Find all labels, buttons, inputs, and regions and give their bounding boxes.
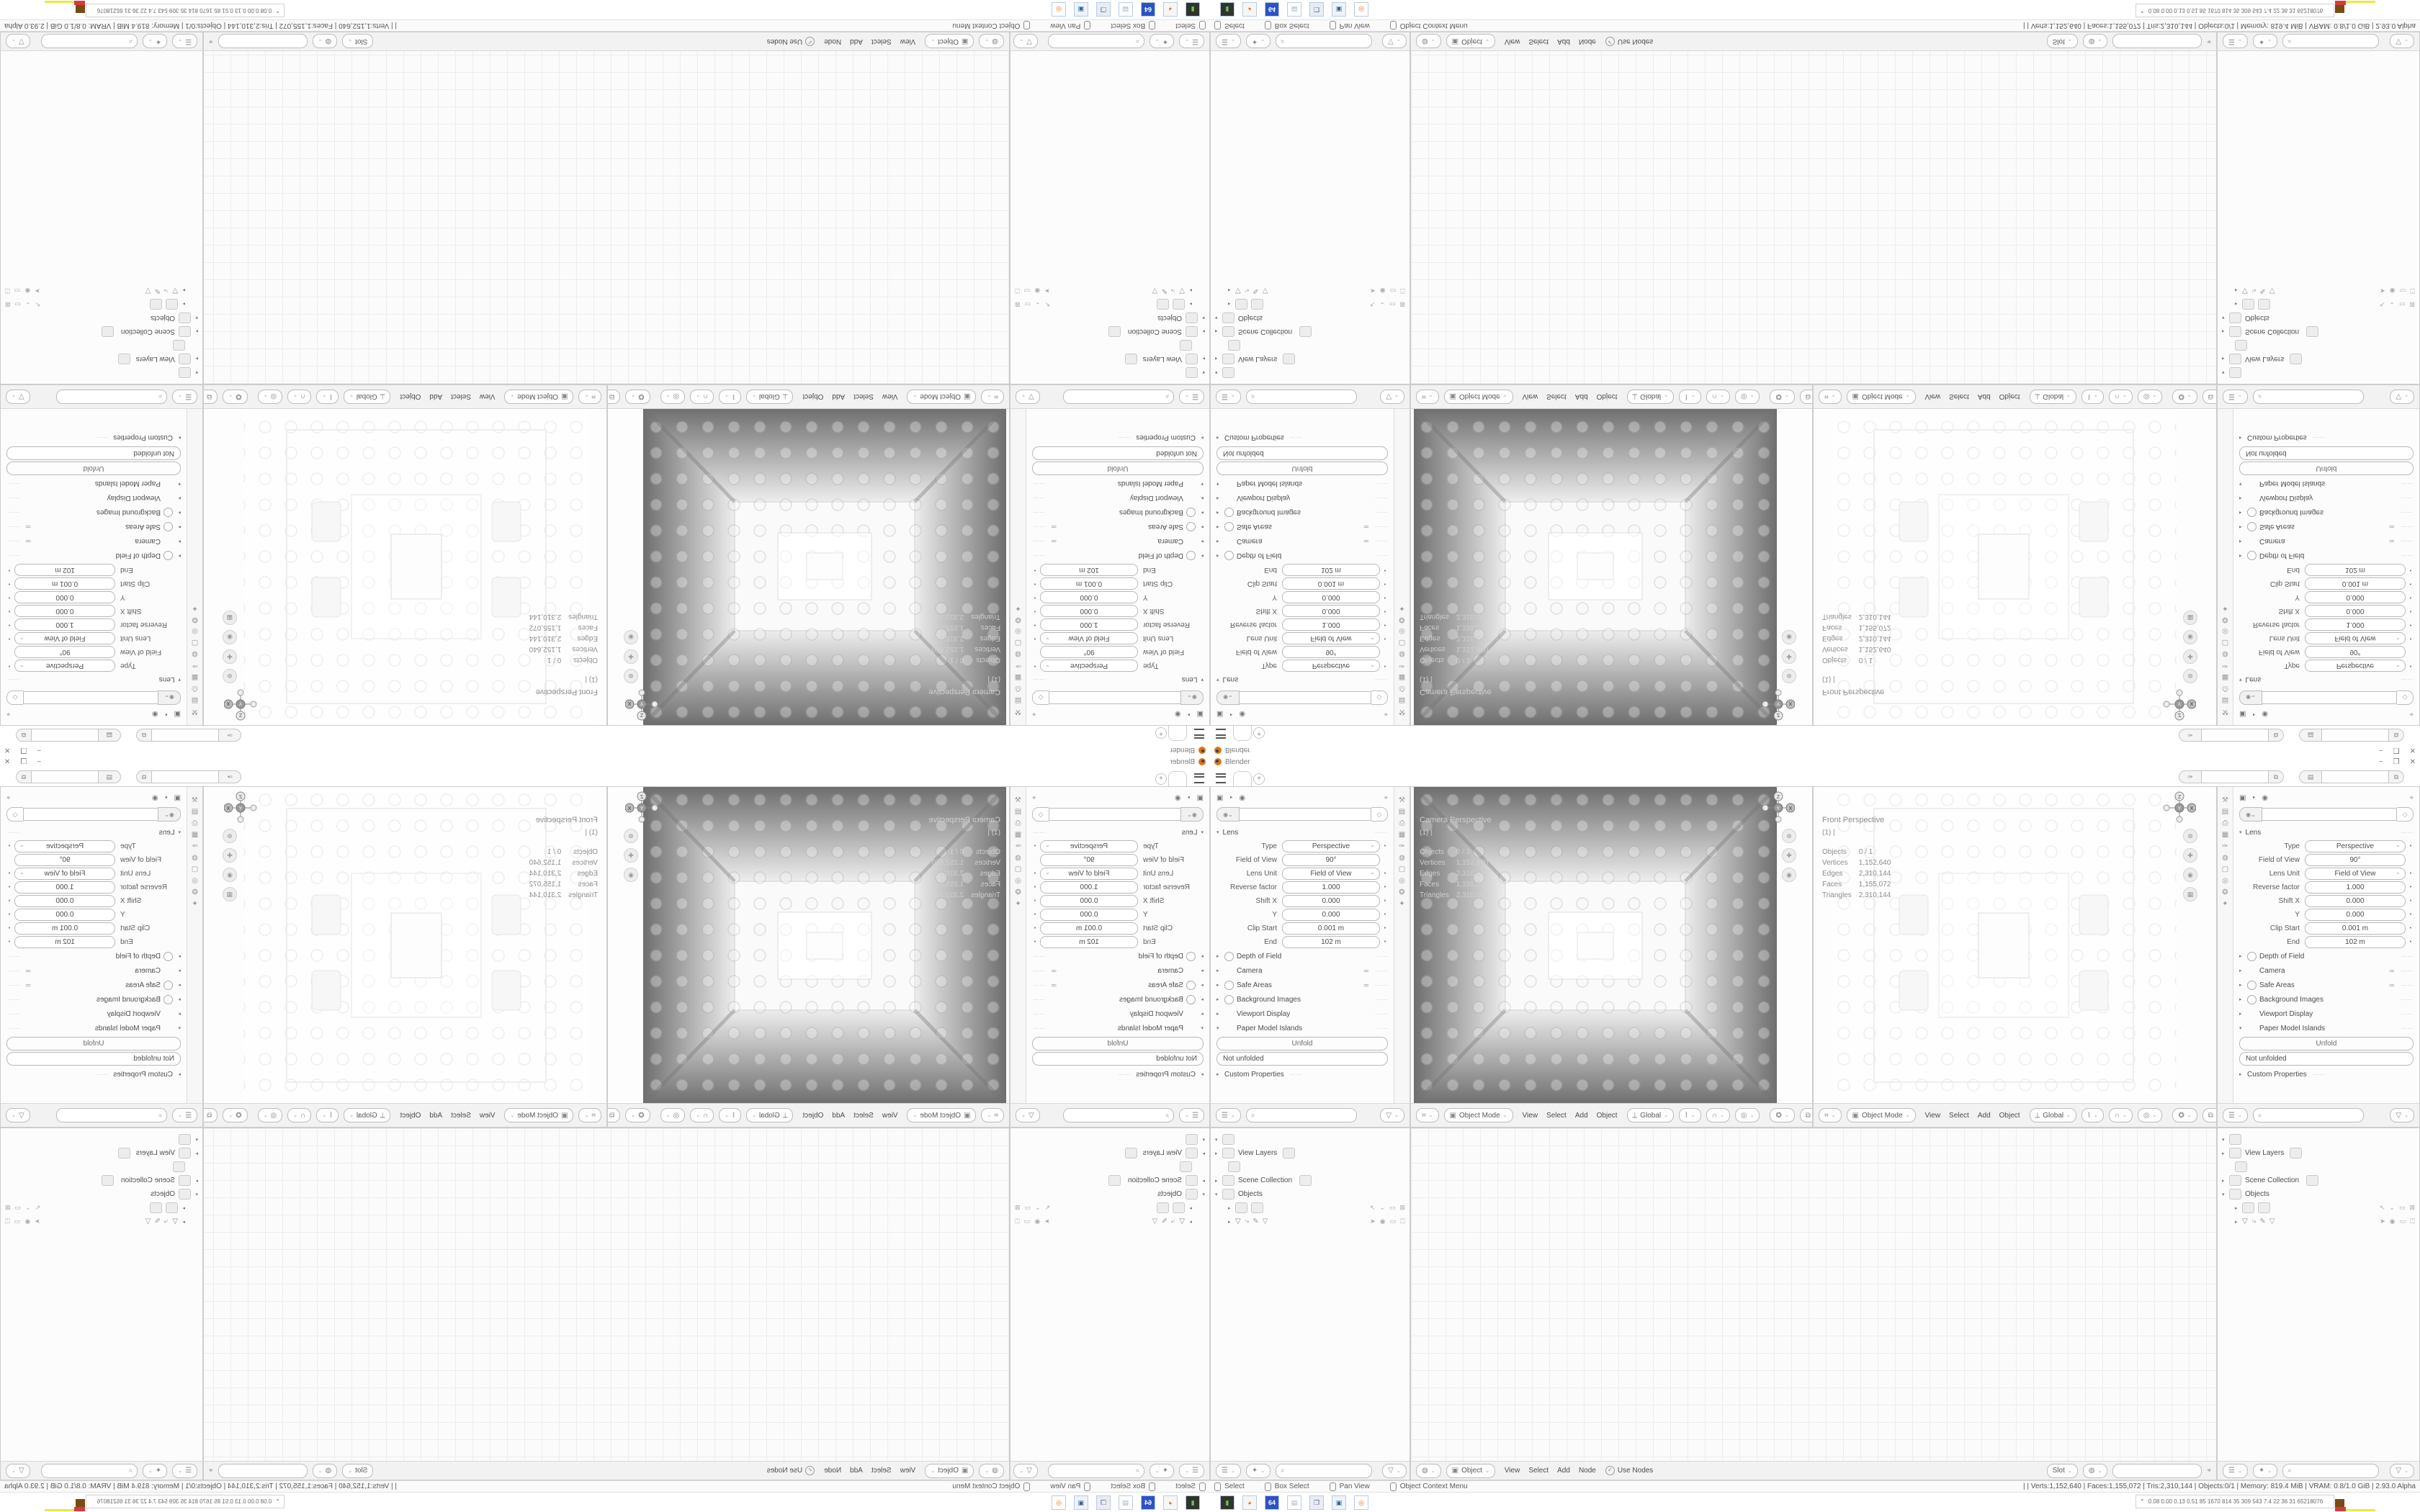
outliner-row-modifiers[interactable]: ▸▽ ⤷✎▽ ➤◉▭⏍ [1015, 284, 1192, 297]
outliner-row-viewlayers[interactable]: ▸View Layers [5, 352, 198, 366]
scene-selector[interactable]: ✑ ⧉ [2179, 729, 2289, 742]
viewport-nav-button[interactable]: ◉ [624, 630, 638, 644]
search-input[interactable]: ⌕ [2282, 1464, 2379, 1478]
menu-item[interactable]: Add [1553, 37, 1574, 45]
panel-checkbox[interactable] [163, 981, 173, 990]
modifier-icon[interactable]: ⤷ [1171, 1218, 1175, 1225]
orientation-dropdown[interactable]: ⟂Global⌄ [344, 390, 390, 404]
properties-tab-icon[interactable]: ✦ [189, 603, 202, 614]
outliner-row-objects[interactable]: ▾Objects [2222, 311, 2415, 325]
search-input[interactable]: ⌕ [56, 390, 167, 404]
properties-tab-icon[interactable]: ⎙ [189, 817, 202, 829]
system-monitor-applet[interactable]: ⌃ 0.08 0.00 0.13 0.51 85 1670 814 35 309… [86, 4, 284, 17]
property-value[interactable]: 0.000 [2305, 592, 2406, 604]
panel-checkbox[interactable] [1224, 508, 1234, 518]
viewport-nav-button[interactable]: ✚ [223, 649, 237, 664]
taskbar-app-icon[interactable]: 64 [1141, 2, 1155, 17]
editor-type-dropdown[interactable]: ⌗⌄ [1819, 1108, 1842, 1122]
editor-type-dropdown[interactable]: ☰⌄ [2223, 390, 2248, 404]
restrict-toggle-icon[interactable]: ↖ [2380, 300, 2385, 308]
filter-dropdown[interactable]: ▽⌄ [1380, 390, 1404, 404]
outliner-row-mesh[interactable]: ▸ ↖⌄▭⊠ [5, 297, 185, 311]
editor-type-dropdown[interactable]: ☰⌄ [2223, 1108, 2248, 1122]
properties-tab-icon[interactable]: ⚒ [1012, 706, 1025, 718]
menu-item[interactable]: Object [1592, 393, 1622, 401]
taskbar-app-icon[interactable]: ▣ [1332, 2, 1346, 17]
property-value[interactable]: 90° [1282, 647, 1380, 659]
modifier-icon[interactable]: ▽ [1263, 287, 1268, 294]
panel-header[interactable]: ▾ Paper Model Islands ≔ ⋯⋯ [2239, 1021, 2414, 1035]
not-unfolded-field[interactable]: Not unfolded [1216, 446, 1388, 460]
menu-item[interactable]: View [896, 1467, 920, 1475]
panel-header[interactable]: ▸ Viewport Display ≔ ⋯⋯ [1216, 1007, 1388, 1021]
property-value[interactable]: 0.000 [14, 895, 115, 907]
id-block-row[interactable]: ◉⌄ ◇ [1032, 690, 1204, 705]
editor-type-dropdown[interactable]: ☰⌄ [1179, 1108, 1204, 1122]
lens-panel-header[interactable]: ▾ Lens ⋯⋯ [6, 826, 181, 839]
animate-dot[interactable]: • [1032, 871, 1038, 876]
fake-user-icon[interactable]: ◇ [1032, 690, 1049, 705]
panel-header[interactable]: ▸ Viewport Display ≔ ⋯⋯ [1032, 1007, 1204, 1021]
property-value[interactable]: 102 m [1282, 564, 1380, 577]
outliner-row-viewlayers[interactable]: ▸View Layers [1015, 1146, 1205, 1160]
viewlayer-selector[interactable]: ▤ ⧉ [2299, 770, 2409, 783]
animate-dot[interactable]: • [1032, 595, 1038, 600]
outliner-row-objects[interactable]: ▾Objects [2222, 1187, 2415, 1201]
property-value[interactable]: 0.000 [1282, 606, 1380, 618]
shading-dropdown[interactable]: ✪⌄ [2172, 390, 2197, 404]
unfold-button[interactable]: Unfold [1032, 462, 1204, 475]
animate-dot[interactable]: • [2408, 595, 2414, 600]
mode-dropdown[interactable]: ▣Object Mode⌄ [1444, 1108, 1513, 1122]
restrict-toggle-icon[interactable]: ▭ [14, 287, 21, 294]
modifier-icon[interactable]: ⤷ [2252, 287, 2257, 294]
slot-dropdown[interactable]: Slot⌄ [2047, 1464, 2078, 1478]
modifier-icon[interactable]: ✎ [2259, 287, 2265, 294]
restrict-toggle-icon[interactable]: ⏍ [1400, 287, 1405, 294]
properties-tab-icon[interactable]: ✑ [1012, 660, 1025, 672]
properties-tab-icon[interactable]: ✑ [2219, 660, 2232, 672]
panel-header[interactable]: ▸ Depth of Field ≔ ⋯⋯ [1032, 949, 1204, 963]
proportional-edit-toggle[interactable]: ◎⌄ [2138, 390, 2163, 404]
outliner-filter-row[interactable]: ▾ [5, 366, 198, 379]
taskbar-app-icon[interactable]: ◕ [1242, 2, 1257, 17]
property-value[interactable]: 0.001 m [2305, 578, 2406, 590]
animate-dot[interactable]: • [6, 885, 12, 890]
outliner-row-mesh[interactable]: ▸ ↖⌄▭⊠ [2235, 1201, 2415, 1215]
restrict-toggle-icon[interactable]: ⌄ [1379, 300, 1385, 308]
unfold-button[interactable]: Unfold [1032, 1037, 1204, 1050]
editor-type-dropdown[interactable]: ⌗⌄ [981, 390, 1004, 404]
restrict-toggle-icon[interactable]: ⊠ [5, 300, 11, 308]
modifier-icon[interactable]: ▽ [145, 287, 151, 294]
new-scene-icon[interactable]: ⧉ [2269, 770, 2284, 783]
modifier-icon[interactable]: ✎ [1161, 287, 1167, 294]
mode-dropdown[interactable]: ▣Object Mode⌄ [1444, 390, 1513, 404]
property-value[interactable]: Field of View [1040, 633, 1138, 645]
panel-header[interactable]: ▸ Viewport Display ≔ ⋯⋯ [2239, 1007, 2414, 1021]
system-monitor-applet[interactable]: ⌃ 0.08 0.00 0.13 0.51 85 1670 814 35 309… [2136, 4, 2334, 17]
properties-tab-icon[interactable]: ▤ [1012, 695, 1025, 706]
filter-dropdown[interactable]: ▽⌄ [1013, 35, 1038, 49]
panel-checkbox[interactable] [163, 995, 173, 1004]
properties-tab-icon[interactable]: ▢ [1396, 637, 1409, 649]
animate-dot[interactable]: • [1032, 664, 1038, 669]
restore-button[interactable]: ❐ [2393, 758, 2400, 766]
restrict-toggle-icon[interactable]: ⏍ [2410, 287, 2415, 294]
viewport-nav-button[interactable]: ◉ [1782, 868, 1796, 882]
pin-icon[interactable]: ⌖ [1384, 711, 1388, 719]
panel-header[interactable]: ▾ Paper Model Islands ≔ ⋯⋯ [1032, 477, 1204, 491]
property-value[interactable]: Perspective [1282, 660, 1380, 672]
axis-gizmo[interactable]: Z Y X [1762, 688, 1795, 721]
menu-item[interactable]: Object [395, 1112, 425, 1120]
shading-dropdown[interactable]: ✪⌄ [223, 390, 247, 404]
properties-tab-icon[interactable]: ✦ [1012, 898, 1025, 909]
property-value[interactable]: 0.000 [1282, 592, 1380, 604]
lens-panel-header[interactable]: ▾ Lens ⋯⋯ [1032, 673, 1204, 686]
panel-header[interactable]: ▸ Camera ≔ ⋯⋯ [2239, 963, 2414, 978]
search-input[interactable]: ⌕ [2253, 1108, 2364, 1122]
property-value[interactable]: 102 m [14, 564, 115, 577]
viewlayer-selector[interactable]: ▤ ⧉ [2299, 729, 2409, 742]
shader-type-dropdown[interactable]: ▣Object⌄ [925, 35, 974, 49]
display-mode-dropdown[interactable]: ✦⌄ [143, 35, 167, 49]
overlays-dropdown[interactable]: ⧉⌄ [1800, 1108, 1813, 1122]
outliner-row-scene-collection[interactable]: ▸Scene Collection [1015, 325, 1205, 338]
restrict-toggle-icon[interactable]: ▭ [1389, 300, 1396, 308]
camera-name-field[interactable] [1049, 808, 1180, 821]
menu-item[interactable]: Add [1571, 393, 1592, 401]
outliner-filter-row[interactable]: ▾ [2222, 366, 2415, 379]
camera-name-field[interactable] [2262, 691, 2397, 704]
search-input[interactable]: ⌕ [1063, 390, 1174, 404]
restrict-toggle-icon[interactable]: ⏍ [5, 287, 10, 294]
animate-dot[interactable]: • [2408, 899, 2414, 904]
panel-checkbox[interactable] [2247, 552, 2257, 561]
property-value[interactable]: 0.000 [1040, 606, 1138, 618]
shading-dropdown[interactable]: ✪⌄ [2172, 1108, 2197, 1122]
filter-dropdown[interactable]: ▽⌄ [6, 390, 30, 404]
proportional-edit-toggle[interactable]: ◎⌄ [258, 390, 283, 404]
properties-tab-icon[interactable]: ◎ [2219, 875, 2232, 886]
animate-dot[interactable]: • [1382, 912, 1388, 917]
panel-checkbox[interactable] [163, 523, 173, 532]
outliner-row-mesh[interactable]: ▸ ↖⌄▭⊠ [5, 1201, 185, 1215]
menu-item[interactable]: View [475, 1112, 500, 1120]
panel-header[interactable]: ▸ Safe Areas ≔ ⋯⋯ [1032, 520, 1204, 534]
restrict-toggle-icon[interactable]: ⊠ [2409, 1204, 2415, 1212]
property-value[interactable]: 1.000 [2305, 619, 2406, 631]
axis-gizmo[interactable]: Z Y X [224, 791, 257, 824]
panel-header[interactable]: ▸ Depth of Field ≔ ⋯⋯ [1216, 549, 1388, 563]
custom-properties-header[interactable]: ▸ Custom Properties ⋯⋯ [1032, 1067, 1204, 1081]
unfold-button[interactable]: Unfold [6, 462, 181, 475]
animate-dot[interactable]: • [1032, 926, 1038, 931]
properties-tab-icon[interactable]: ✑ [1396, 660, 1409, 672]
animate-dot[interactable]: • [1032, 636, 1038, 642]
properties-tab-icon[interactable]: ◍ [2219, 649, 2232, 660]
panel-checkbox[interactable] [2247, 508, 2257, 518]
properties-tab-icon[interactable]: ⚒ [1012, 794, 1025, 806]
restrict-toggle-icon[interactable]: ⌄ [2389, 1204, 2395, 1212]
restrict-toggle-icon[interactable]: ◉ [24, 287, 30, 294]
menu-item[interactable]: Object [395, 393, 425, 401]
workspace-tab[interactable] [1233, 725, 1252, 741]
modifier-icon[interactable]: ▽ [1152, 1218, 1158, 1225]
restrict-toggle-icon[interactable]: ➤ [2380, 1218, 2385, 1225]
orientation-dropdown[interactable]: ⟂Global⌄ [344, 1108, 390, 1122]
properties-tab-icon[interactable]: ▢ [189, 863, 202, 875]
properties-tab-icon[interactable]: ◎ [1012, 626, 1025, 637]
menu-item[interactable]: View [878, 393, 902, 401]
snap-toggle[interactable]: ⌇⌄ [719, 1108, 741, 1122]
panel-header[interactable]: ▸ Safe Areas ≔ ⋯⋯ [6, 520, 181, 534]
orientation-dropdown[interactable]: ⟂Global⌄ [1627, 390, 1674, 404]
restrict-toggle-icon[interactable]: ▭ [1025, 300, 1031, 308]
outliner-row-world[interactable] [5, 1160, 185, 1174]
outliner-row-viewlayers[interactable]: ▸View Layers [1215, 1146, 1405, 1160]
panel-header[interactable]: ▸ Background Images ≔ ⋯⋯ [6, 992, 181, 1007]
viewport-nav-button[interactable]: ◉ [624, 868, 638, 882]
modifier-icon[interactable]: ✎ [1161, 1218, 1167, 1225]
orientation-dropdown[interactable]: ⟂Global⌄ [746, 390, 793, 404]
not-unfolded-field[interactable]: Not unfolded [1032, 1052, 1204, 1066]
modifier-icon[interactable]: ⤷ [1245, 287, 1250, 294]
animate-dot[interactable]: • [1382, 636, 1388, 642]
panel-header[interactable]: ▸ Viewport Display ≔ ⋯⋯ [2239, 491, 2414, 505]
panel-checkbox[interactable] [2247, 523, 2257, 532]
new-scene-icon[interactable]: ⧉ [136, 729, 151, 742]
taskbar-app-icon[interactable]: ▤ [1119, 2, 1133, 17]
viewport-nav-button[interactable]: ⊕ [1782, 829, 1796, 843]
outliner-filter-row[interactable]: ▾ [5, 1133, 198, 1146]
slot-dropdown[interactable]: Slot⌄ [342, 35, 373, 49]
animate-dot[interactable]: • [1382, 940, 1388, 945]
properties-tab-icon[interactable]: ◍ [1012, 649, 1025, 660]
scene-name-field[interactable] [151, 770, 218, 783]
restrict-toggle-icon[interactable]: ↖ [2380, 1204, 2385, 1212]
restore-button[interactable]: ❐ [20, 747, 27, 755]
custom-properties-header[interactable]: ▸ Custom Properties ⋯⋯ [6, 1067, 181, 1081]
shader-type-dropdown[interactable]: ▣Object⌄ [1446, 1464, 1495, 1478]
properties-tab-icon[interactable]: ❂ [1012, 614, 1025, 626]
menu-item[interactable]: View [475, 393, 500, 401]
outliner-row-mesh[interactable]: ▸ ↖⌄▭⊠ [2235, 297, 2415, 311]
menu-item[interactable]: View [1500, 1467, 1525, 1475]
taskbar-app-icon[interactable]: ▮ [1186, 1495, 1200, 1510]
editor-type-dropdown[interactable]: ☰⌄ [172, 1464, 197, 1478]
modifier-icon[interactable]: ✎ [154, 287, 160, 294]
menu-item[interactable]: Add [1973, 1112, 1995, 1120]
viewlayer-name-field[interactable] [2322, 770, 2389, 783]
outliner-filter-row[interactable]: ▾ [1215, 1133, 1405, 1146]
outliner-filter-row[interactable]: ▾ [1015, 366, 1205, 379]
id-block-row[interactable]: ◉⌄ ◇ [1216, 807, 1388, 822]
animate-dot[interactable]: • [2408, 912, 2414, 917]
shader-node-editor[interactable]: ▾ Value Divide Clamp [203, 1128, 1010, 1480]
panel-header[interactable]: ▸ Depth of Field ≔ ⋯⋯ [1032, 549, 1204, 563]
properties-tab-icon[interactable]: ▦ [1012, 672, 1025, 683]
outliner-filter-row[interactable]: ▾ [1215, 366, 1405, 379]
property-value[interactable]: Field of View [14, 868, 115, 880]
outliner-row-objects[interactable]: ▾Objects [5, 1187, 198, 1201]
panel-header[interactable]: ▸ Camera ≔ ⋯⋯ [1216, 963, 1388, 978]
unfold-button[interactable]: Unfold [2239, 462, 2414, 475]
property-value[interactable]: 0.001 m [1282, 578, 1380, 590]
taskbar-app-icon[interactable]: ◕ [1163, 2, 1178, 17]
properties-tab-icon[interactable]: ✑ [189, 660, 202, 672]
menu-item[interactable]: Select [849, 393, 878, 401]
animate-dot[interactable]: • [2408, 636, 2414, 642]
shader-node-editor[interactable]: ▾ Value Divide Clamp [1410, 1128, 2217, 1480]
custom-properties-header[interactable]: ▸ Custom Properties ⋯⋯ [2239, 431, 2414, 445]
animate-dot[interactable]: • [6, 912, 12, 917]
pin-icon[interactable]: ⌖ [209, 37, 213, 45]
taskbar-app-icon[interactable]: ◎ [1354, 1495, 1368, 1510]
search-input[interactable]: ⌕ [41, 35, 138, 49]
panel-header[interactable]: ▸ Camera ≔ ⋯⋯ [1216, 534, 1388, 549]
properties-tab-icon[interactable]: ▤ [2219, 806, 2232, 817]
new-viewlayer-icon[interactable]: ⧉ [2389, 729, 2404, 742]
property-value[interactable]: 1.000 [1282, 619, 1380, 631]
properties-tab-icon[interactable]: ❂ [1012, 886, 1025, 898]
viewport-nav-button[interactable]: ▦ [223, 887, 237, 901]
system-monitor-applet[interactable]: ⌃ 0.08 0.00 0.13 0.51 85 1670 814 35 309… [86, 1495, 284, 1508]
magnet-toggle[interactable]: ∩⌄ [1706, 390, 1730, 404]
modifier-icon[interactable]: ⤷ [1245, 1218, 1250, 1225]
editor-type-dropdown[interactable]: ⌗⌄ [578, 1108, 601, 1122]
property-value[interactable]: Field of View [2305, 868, 2406, 880]
overlays-dropdown[interactable]: ⧉⌄ [607, 1108, 620, 1122]
filter-dropdown[interactable]: ▽⌄ [2390, 1108, 2414, 1122]
animate-dot[interactable]: • [2408, 609, 2414, 614]
camera-id-icon[interactable]: ◉⌄ [2239, 690, 2262, 705]
close-button[interactable]: ✕ [2410, 758, 2416, 766]
restrict-toggle-icon[interactable]: ⊠ [1399, 1204, 1405, 1212]
shader-type-dropdown[interactable]: ▣Object⌄ [925, 1464, 974, 1478]
editor-type-dropdown[interactable]: ☰⌄ [1216, 1108, 1241, 1122]
overlays-dropdown[interactable]: ⧉⌄ [203, 1108, 218, 1122]
menu-item[interactable]: Select [867, 1467, 896, 1475]
menu-item[interactable]: Select [1945, 393, 1973, 401]
property-value[interactable]: 102 m [1282, 936, 1380, 948]
custom-properties-header[interactable]: ▸ Custom Properties ⋯⋯ [2239, 1067, 2414, 1081]
properties-tab-icon[interactable]: ▦ [189, 672, 202, 683]
lens-panel-header[interactable]: ▾ Lens ⋯⋯ [1216, 826, 1388, 839]
not-unfolded-field[interactable]: Not unfolded [6, 1052, 181, 1066]
outliner-row-modifiers[interactable]: ▸▽ ⤷✎▽ ➤◉▭⏍ [2235, 284, 2415, 297]
minimize-button[interactable]: − [37, 758, 41, 766]
mode-dropdown[interactable]: ▣Object Mode⌄ [907, 390, 976, 404]
property-value[interactable]: Field of View [2305, 633, 2406, 645]
fake-user-icon[interactable]: ◇ [1371, 690, 1388, 705]
viewport-nav-button[interactable]: ◉ [223, 630, 237, 644]
properties-tab-icon[interactable]: ❂ [2219, 614, 2232, 626]
properties-tab-icon[interactable]: ✦ [1396, 603, 1409, 614]
proportional-edit-toggle[interactable]: ◎⌄ [2138, 1108, 2163, 1122]
viewport-front[interactable]: Front Perspective (1) | Objects0 / 1Vert… [203, 384, 607, 726]
outliner-filter-row[interactable]: ▾ [1015, 1133, 1205, 1146]
property-value[interactable]: 1.000 [14, 619, 115, 631]
new-viewlayer-icon[interactable]: ⧉ [16, 729, 31, 742]
modifier-icon[interactable]: ▽ [1263, 1218, 1268, 1225]
editor-type-dropdown[interactable]: ☰⌄ [1179, 390, 1204, 404]
properties-tab-icon[interactable]: ❂ [189, 614, 202, 626]
search-input[interactable]: ⌕ [2253, 390, 2364, 404]
system-monitor-applet[interactable]: ⌃ 0.08 0.00 0.13 0.51 85 1670 814 35 309… [2136, 1495, 2334, 1508]
viewlayer-selector[interactable]: ▤ ⧉ [11, 770, 121, 783]
panel-header[interactable]: ▸ Safe Areas ≔ ⋯⋯ [1216, 978, 1388, 992]
menu-item[interactable]: Select [1945, 1112, 1973, 1120]
scene-selector[interactable]: ✑ ⧉ [2179, 770, 2289, 783]
id-block-row[interactable]: ◉⌄ ◇ [2239, 807, 2414, 822]
viewport-nav-button[interactable]: ✚ [1782, 649, 1796, 664]
properties-tab-icon[interactable]: ▤ [1396, 695, 1409, 706]
not-unfolded-field[interactable]: Not unfolded [6, 446, 181, 460]
snap-toggle[interactable]: ⌇⌄ [316, 1108, 339, 1122]
panel-checkbox[interactable] [1186, 508, 1196, 518]
properties-tab-icon[interactable]: ◍ [1396, 649, 1409, 660]
outliner-row-modifiers[interactable]: ▸▽ ⤷✎▽ ➤◉▭⏍ [5, 1215, 185, 1228]
properties-tab-icon[interactable]: ▦ [189, 829, 202, 840]
outliner-row-mesh[interactable]: ▸ ↖⌄▭⊠ [1015, 297, 1192, 311]
animate-dot[interactable]: • [2408, 664, 2414, 669]
outliner-row-scene-collection[interactable]: ▸Scene Collection [1215, 1174, 1405, 1187]
property-value[interactable]: Field of View [1040, 868, 1138, 880]
restrict-toggle-icon[interactable]: ➤ [1044, 1218, 1050, 1225]
viewport-nav-button[interactable]: ⊕ [624, 829, 638, 843]
animate-dot[interactable]: • [2408, 885, 2414, 890]
animate-dot[interactable]: • [1032, 609, 1038, 614]
close-button[interactable]: ✕ [4, 758, 10, 766]
menu-item[interactable]: Select [867, 37, 896, 45]
properties-tab-icon[interactable]: ▢ [2219, 863, 2232, 875]
snap-toggle[interactable]: ⌇⌄ [1679, 1108, 1701, 1122]
menu-item[interactable]: Node [820, 37, 846, 45]
animate-dot[interactable]: • [1382, 844, 1388, 849]
material-name-field[interactable] [2112, 1464, 2202, 1478]
outliner-row-modifiers[interactable]: ▸▽ ⤷✎▽ ➤◉▭⏍ [1228, 1215, 1405, 1228]
outliner-row-world[interactable] [1015, 1160, 1192, 1174]
outliner-row-scene-collection[interactable]: ▸Scene Collection [5, 1174, 198, 1187]
restore-button[interactable]: ❐ [2393, 747, 2400, 755]
property-value[interactable]: 0.000 [1282, 895, 1380, 907]
properties-tab-icon[interactable]: ▢ [189, 637, 202, 649]
properties-tab-icon[interactable]: ▦ [2219, 829, 2232, 840]
property-value[interactable]: Field of View [1282, 868, 1380, 880]
properties-tab-icon[interactable]: ✦ [1012, 603, 1025, 614]
properties-tab-icon[interactable]: ▢ [1396, 863, 1409, 875]
restrict-toggle-icon[interactable]: ⌄ [1035, 300, 1041, 308]
animate-dot[interactable]: • [6, 623, 12, 628]
editor-type-dropdown[interactable]: ◍⌄ [979, 35, 1004, 49]
mode-dropdown[interactable]: ▣Object Mode⌄ [1847, 1108, 1916, 1122]
viewport-nav-button[interactable]: ⊕ [624, 669, 638, 683]
fake-user-icon[interactable]: ◇ [1371, 807, 1388, 822]
menu-item[interactable]: Add [846, 1467, 867, 1475]
property-value[interactable]: 90° [2305, 647, 2406, 659]
not-unfolded-field[interactable]: Not unfolded [2239, 446, 2414, 460]
add-workspace-button[interactable]: + [1253, 773, 1265, 785]
animate-dot[interactable]: • [1032, 885, 1038, 890]
modifier-icon[interactable]: ✎ [154, 1218, 160, 1225]
panel-header[interactable]: ▾ Paper Model Islands ≔ ⋯⋯ [1032, 1021, 1204, 1035]
restrict-toggle-icon[interactable]: ➤ [35, 287, 40, 294]
minimize-button[interactable]: − [37, 747, 41, 755]
modifier-icon[interactable]: ✎ [2259, 1218, 2265, 1225]
property-value[interactable]: 1.000 [1040, 619, 1138, 631]
